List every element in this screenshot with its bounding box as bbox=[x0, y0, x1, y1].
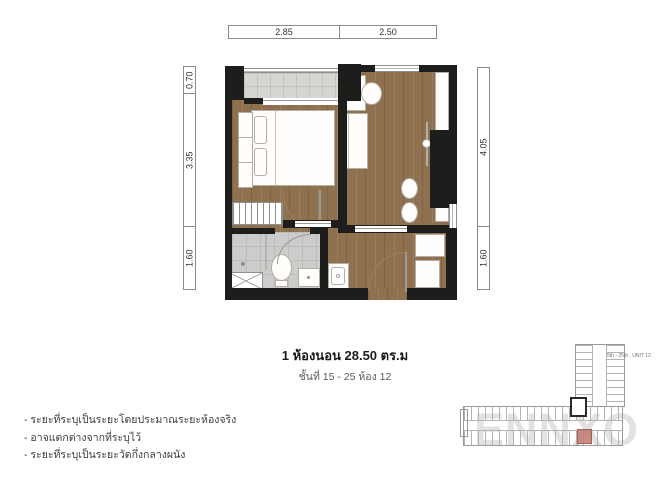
dimension-top-2: 2.50 bbox=[339, 25, 437, 39]
wall bbox=[225, 288, 368, 300]
footnotes: - ระยะที่ระบุเป็นระยะโดยประมาณระยะห้องจร… bbox=[24, 412, 236, 465]
kitchen-cabinet bbox=[415, 260, 440, 288]
dimension-right-2: 1.60 bbox=[477, 226, 490, 290]
window-right bbox=[449, 204, 457, 228]
kitchen-cabinet bbox=[415, 234, 445, 257]
dimension-bar-right: 4.05 1.60 bbox=[477, 68, 490, 290]
wardrobe-closet bbox=[232, 202, 283, 225]
window-living bbox=[375, 65, 419, 72]
wardrobe-shelf-line bbox=[239, 162, 252, 163]
dimension-right-1: 4.05 bbox=[477, 67, 490, 227]
footnote-line: - ระยะที่ระบุเป็นระยะวัดกึ่งกลางผนัง bbox=[24, 447, 236, 465]
dimension-left-2: 3.35 bbox=[183, 93, 196, 227]
wardrobe-shelf-line bbox=[239, 137, 252, 138]
wall-column bbox=[430, 130, 449, 208]
wall bbox=[320, 228, 328, 288]
wall bbox=[310, 228, 320, 234]
stool bbox=[401, 178, 418, 199]
sliding-door-balcony bbox=[263, 98, 338, 105]
keyplan-end-block bbox=[460, 409, 468, 437]
wall bbox=[407, 288, 457, 300]
unit-title: 1 ห้องนอน 28.50 ตร.ม bbox=[215, 345, 475, 366]
dimension-left-3: 1.60 bbox=[183, 226, 196, 290]
keyplan-horizontal-wing bbox=[463, 406, 623, 446]
dimension-left-1: 0.70 bbox=[183, 66, 196, 94]
vanity-drain bbox=[307, 276, 310, 279]
pillow bbox=[254, 116, 267, 144]
footnote-line: - ระยะที่ระบุเป็นระยะโดยประมาณระยะห้องจร… bbox=[24, 412, 236, 430]
blanket-fold-line bbox=[275, 111, 276, 185]
balcony-railing bbox=[244, 68, 338, 73]
round-table bbox=[361, 82, 382, 105]
toilet-tank bbox=[275, 280, 288, 287]
dimension-bar-left: 0.70 3.35 1.60 bbox=[183, 67, 196, 290]
wall bbox=[225, 94, 232, 300]
door-leaf-entry bbox=[405, 252, 407, 292]
dimension-top-1: 2.85 bbox=[228, 25, 340, 39]
sink-drain bbox=[336, 274, 340, 278]
wall bbox=[244, 98, 263, 104]
shower-partition bbox=[265, 232, 267, 270]
keyplan-units bbox=[464, 407, 622, 421]
shower-drain bbox=[241, 262, 245, 266]
sliding-door-bedroom bbox=[295, 221, 331, 227]
stool bbox=[401, 202, 418, 223]
wall bbox=[338, 64, 347, 225]
sofa-seat-line bbox=[348, 114, 349, 168]
keyplan-highlighted-unit bbox=[577, 429, 592, 444]
keyplan-units bbox=[464, 430, 622, 445]
sliding-door-living bbox=[355, 226, 407, 232]
balcony-floor bbox=[244, 73, 338, 100]
floor-plan bbox=[225, 56, 457, 300]
wall bbox=[225, 228, 275, 234]
unit-subtitle: ชั้นที่ 15 - 25 ห้อง 12 bbox=[215, 368, 475, 385]
building-key-plan: 5th - 25th , UNIT 12 bbox=[460, 343, 670, 448]
pillow bbox=[254, 148, 267, 176]
keyplan-label: 5th - 25th , UNIT 12 bbox=[607, 353, 651, 359]
footnote-line: - อาจแตกต่างจากที่ระบุไว้ bbox=[24, 430, 236, 448]
dimension-bar-top: 2.85 2.50 bbox=[229, 25, 437, 39]
keyplan-core-unit bbox=[570, 397, 587, 417]
wardrobe bbox=[238, 112, 253, 188]
